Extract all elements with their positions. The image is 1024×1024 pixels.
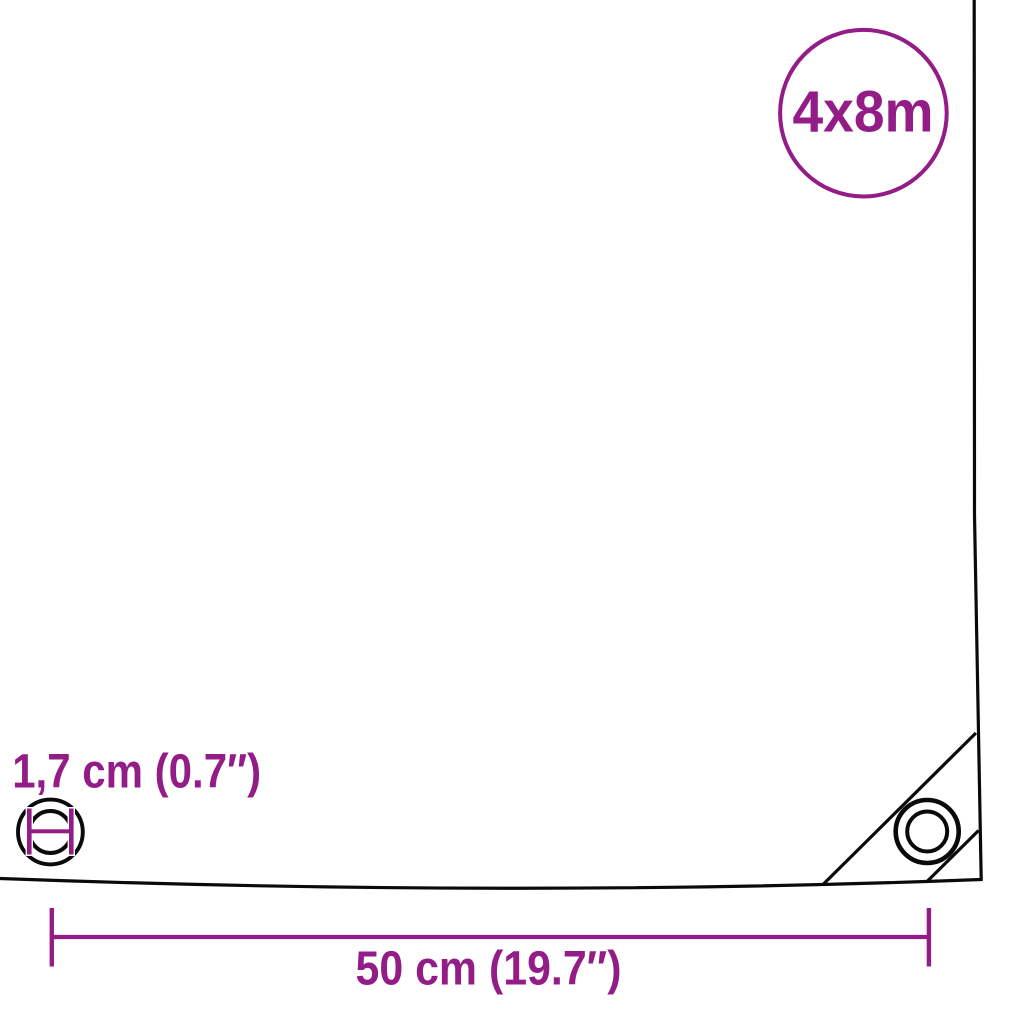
svg-text:1,7 cm (0.7″): 1,7 cm (0.7″) [12, 745, 261, 799]
svg-text:4x8m: 4x8m [793, 80, 934, 145]
svg-text:50 cm (19.7″): 50 cm (19.7″) [356, 942, 622, 996]
